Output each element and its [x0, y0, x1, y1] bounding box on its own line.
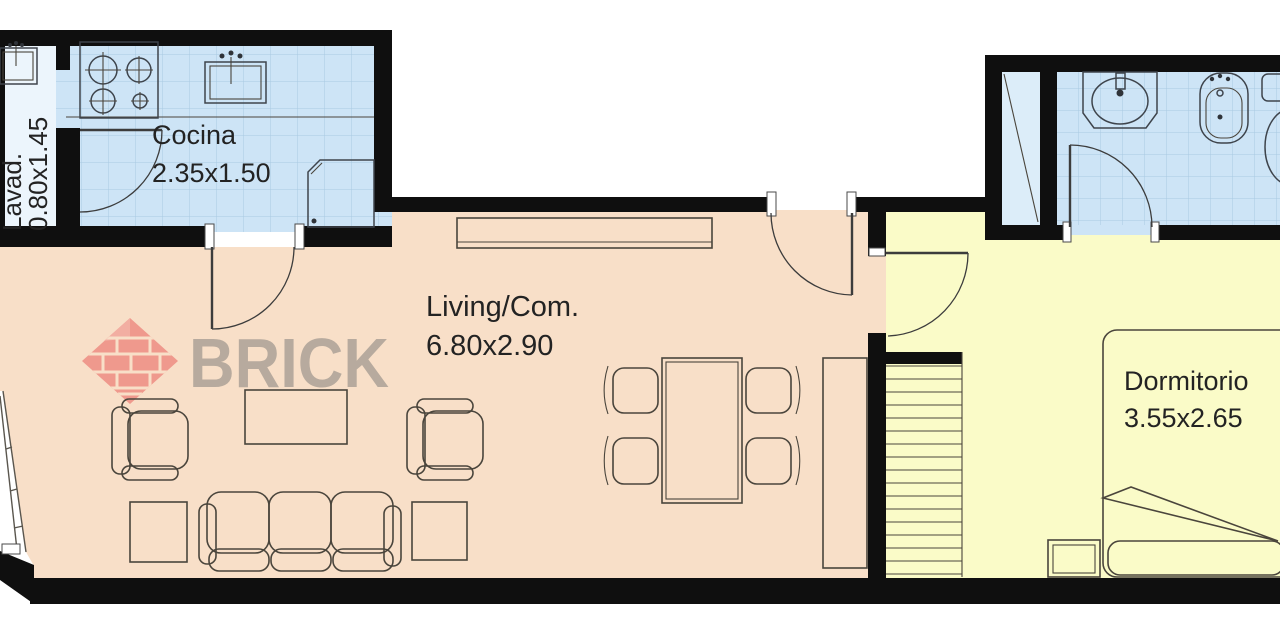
floor-plan: BRICK — [0, 0, 1280, 638]
living-label: Living/Com. — [426, 291, 579, 323]
kitchen-label: Cocina — [152, 120, 237, 150]
laundry-dims: 0.80x1.45 — [23, 117, 53, 231]
window-end-jamb — [2, 544, 20, 554]
bedroom-dims: 3.55x2.65 — [1124, 403, 1243, 433]
brand-watermark: BRICK — [80, 318, 389, 404]
kitchen-dims: 2.35x1.50 — [152, 158, 271, 188]
floor-plan-svg: BRICK — [0, 0, 1280, 638]
living-dims: 6.80x2.90 — [426, 330, 553, 362]
bedroom-label: Dormitorio — [1124, 366, 1249, 396]
